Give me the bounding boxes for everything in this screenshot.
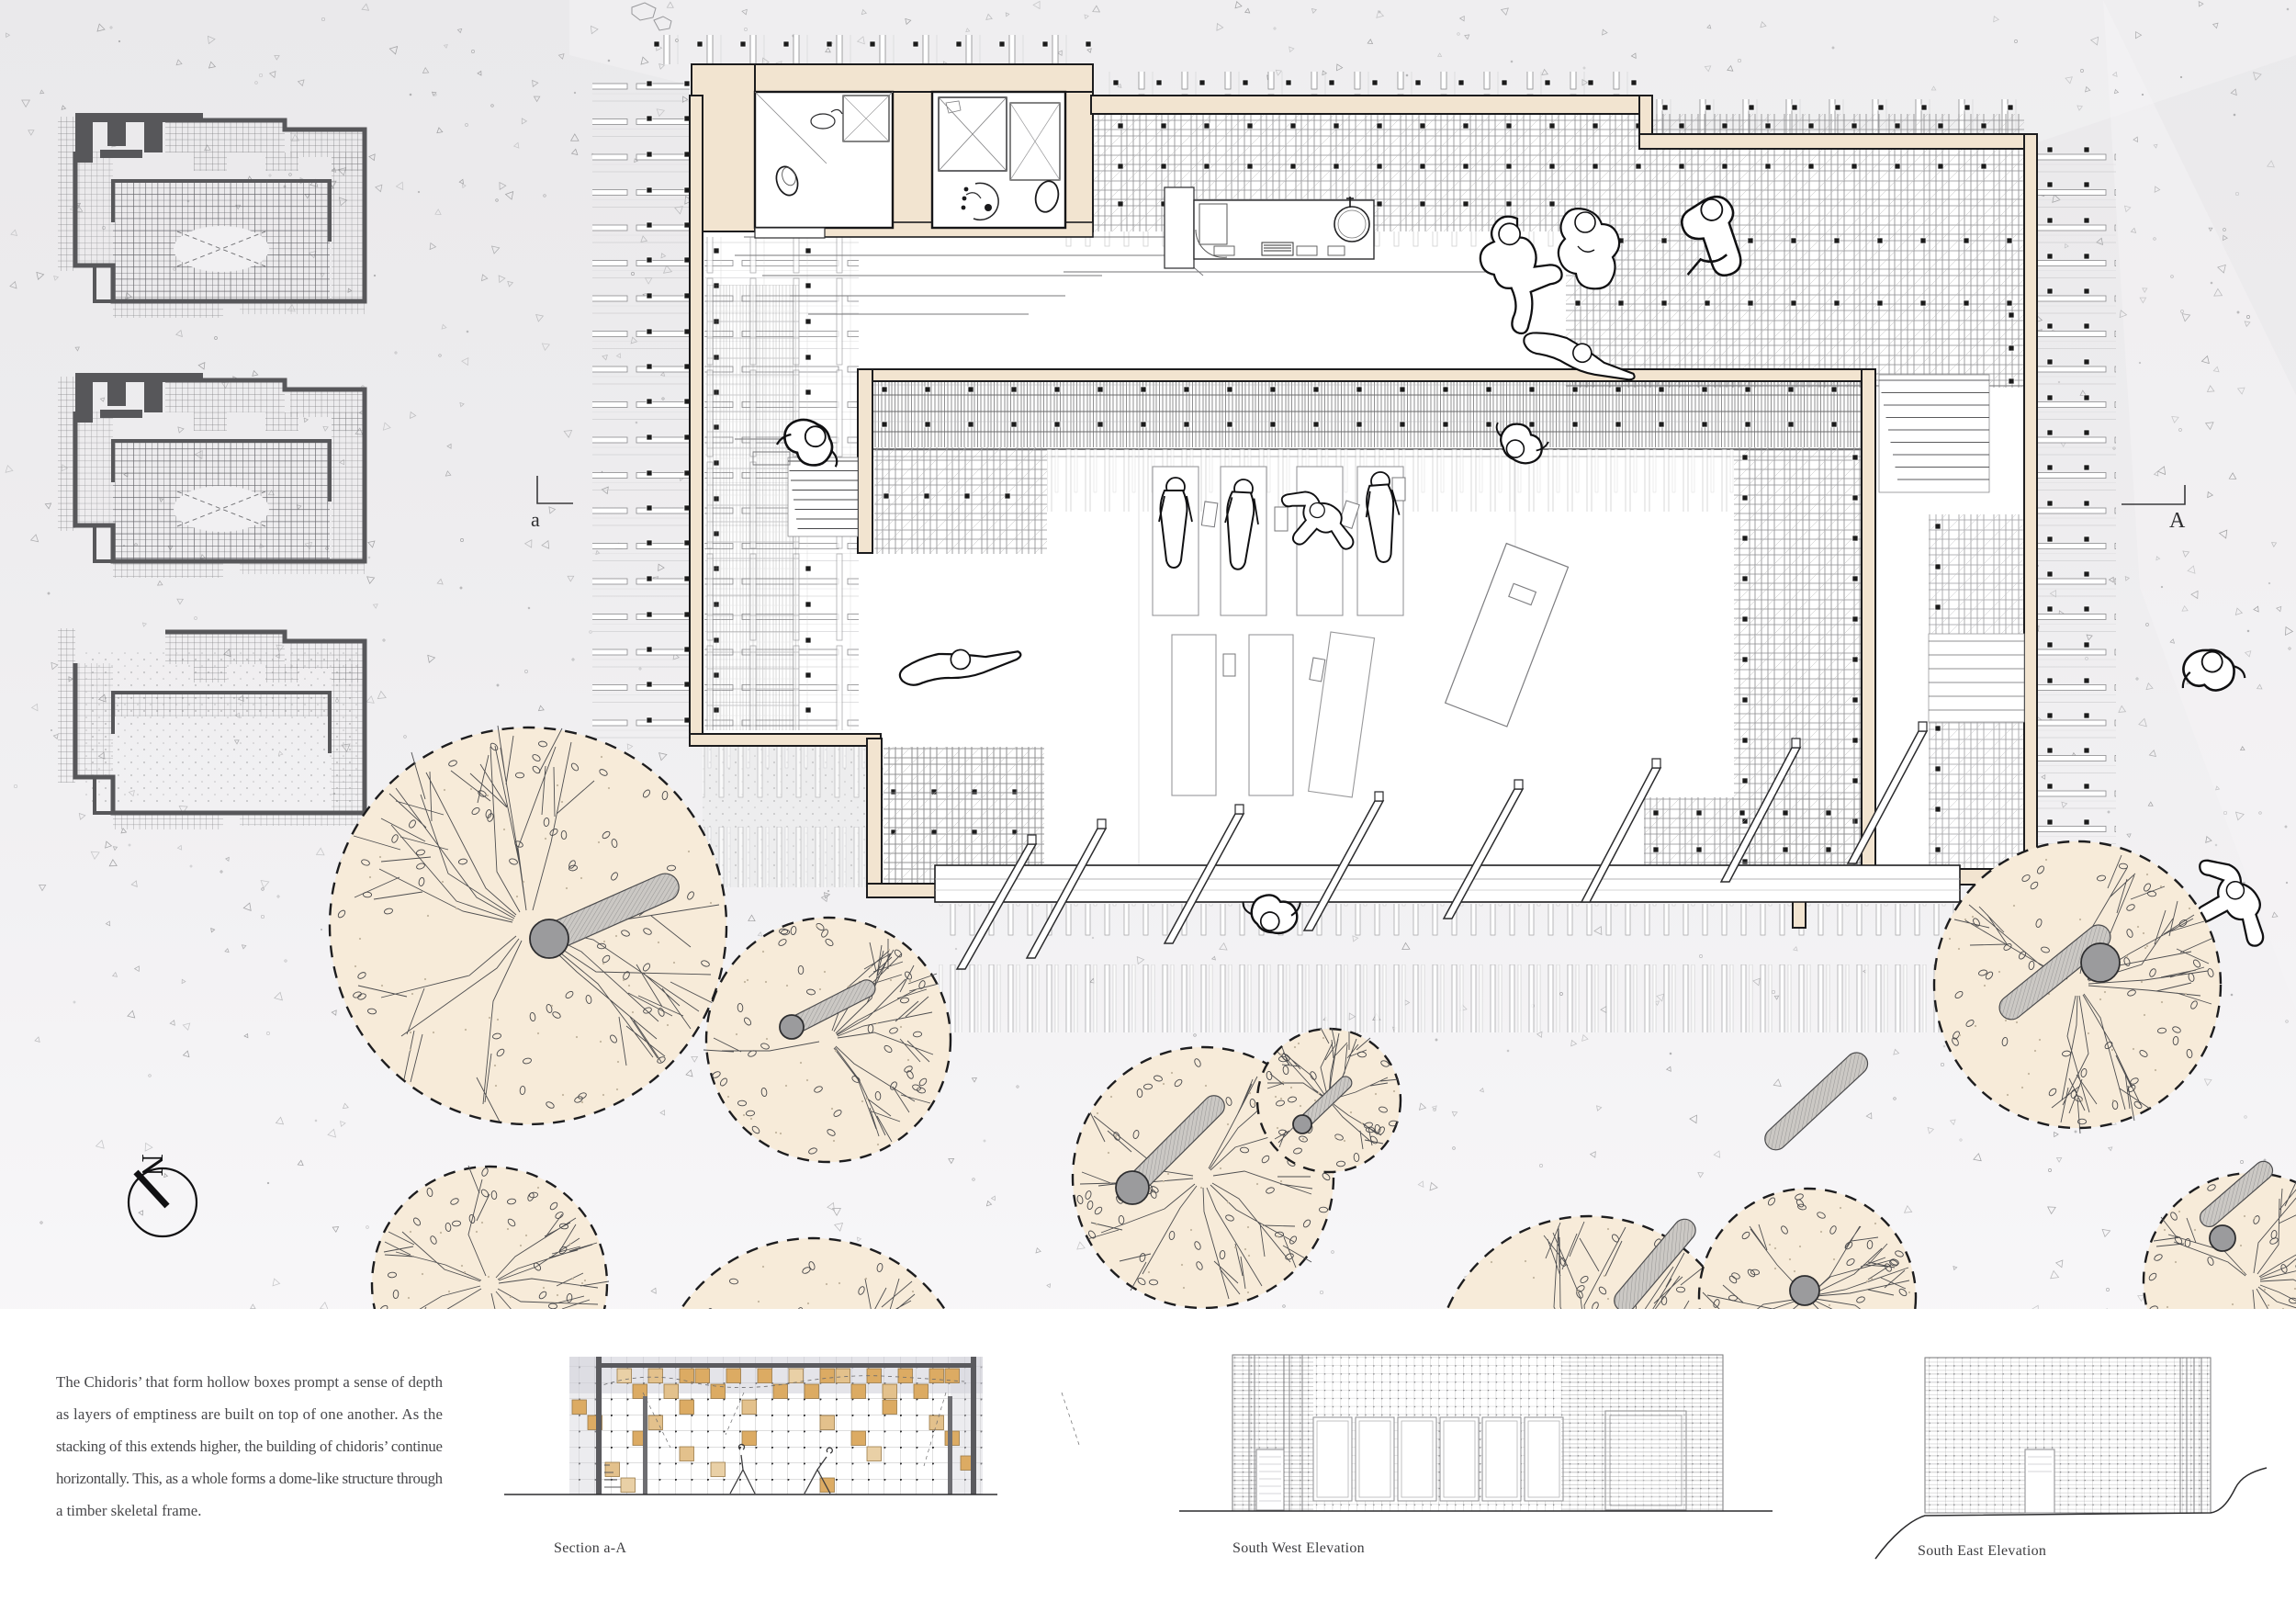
svg-text:N: N — [135, 1154, 169, 1177]
svg-text:a timber skeletal frame.: a timber skeletal frame. — [56, 1502, 201, 1519]
svg-text:horizontally. This, as a whole: horizontally. This, as a whole forms a d… — [56, 1470, 444, 1487]
svg-text:as layers of emptiness are bui: as layers of emptiness are built on top … — [56, 1405, 443, 1423]
svg-text:stacking of this extends highe: stacking of this extends higher, the bui… — [56, 1438, 443, 1455]
svg-text:a: a — [531, 508, 540, 531]
svg-text:A: A — [2169, 509, 2186, 533]
svg-text:The Chidoris’ that form hollow: The Chidoris’ that form hollow boxes pro… — [56, 1373, 444, 1391]
